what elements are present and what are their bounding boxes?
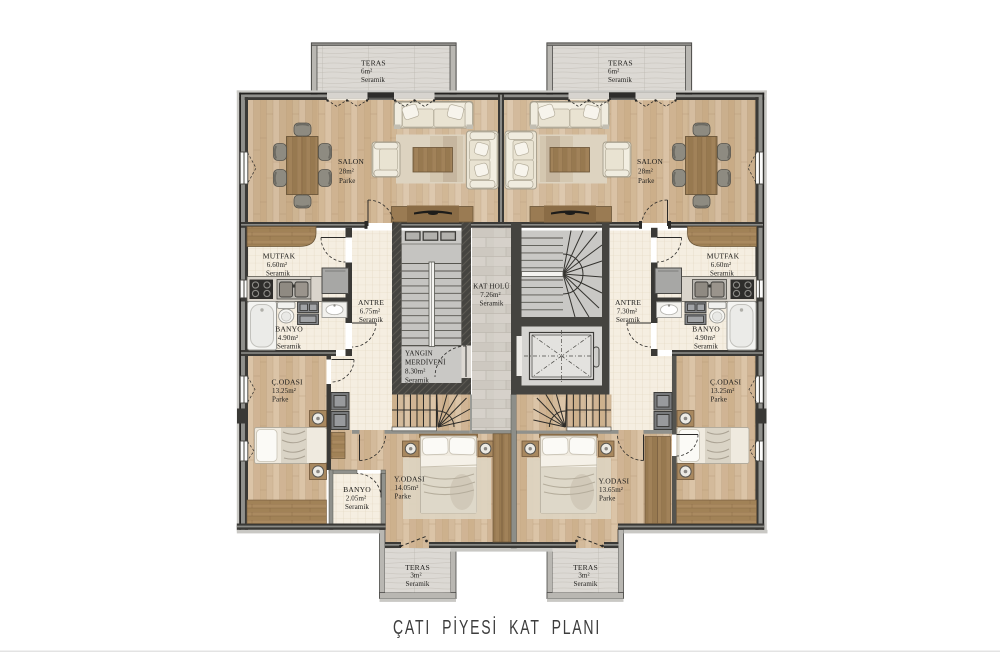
- svg-text:Parke: Parke: [272, 396, 288, 404]
- svg-text:SALON: SALON: [338, 157, 364, 166]
- svg-text:Parke: Parke: [339, 177, 355, 185]
- svg-text:Seramik: Seramik: [479, 300, 503, 308]
- svg-text:Y.ODASI: Y.ODASI: [394, 475, 425, 484]
- svg-text:Seramik: Seramik: [345, 503, 369, 511]
- svg-text:Seramik: Seramik: [361, 76, 385, 84]
- svg-text:14.05m²: 14.05m²: [395, 484, 419, 492]
- svg-text:SALON: SALON: [637, 157, 663, 166]
- svg-text:Y.ODASI: Y.ODASI: [599, 477, 630, 486]
- svg-text:7.30m²: 7.30m²: [617, 308, 637, 316]
- svg-text:Seramik: Seramik: [405, 580, 429, 588]
- svg-text:BANYO: BANYO: [343, 485, 371, 494]
- svg-text:Seramik: Seramik: [616, 316, 640, 324]
- svg-text:28m²: 28m²: [339, 168, 354, 176]
- svg-text:TERAS: TERAS: [361, 59, 386, 68]
- svg-text:MUTFAK: MUTFAK: [707, 252, 740, 261]
- svg-text:YANGIN: YANGIN: [405, 350, 433, 358]
- svg-text:Ç.ODASI: Ç.ODASI: [710, 378, 742, 387]
- svg-text:Ç.ODASI: Ç.ODASI: [272, 378, 304, 387]
- svg-text:Seramik: Seramik: [405, 377, 429, 385]
- svg-text:TERAS: TERAS: [608, 59, 633, 68]
- svg-text:Seramik: Seramik: [266, 270, 290, 278]
- svg-text:Seramik: Seramik: [710, 270, 734, 278]
- svg-text:KAT HOLÜ: KAT HOLÜ: [473, 282, 510, 291]
- svg-text:ANTRE: ANTRE: [358, 298, 384, 307]
- svg-text:3m²: 3m²: [410, 572, 421, 580]
- svg-text:3m²: 3m²: [578, 572, 589, 580]
- svg-text:6.60m²: 6.60m²: [267, 261, 287, 269]
- svg-text:6m²: 6m²: [361, 68, 372, 76]
- svg-text:Seramik: Seramik: [277, 343, 301, 351]
- svg-text:4.90m²: 4.90m²: [278, 334, 298, 342]
- svg-text:Seramik: Seramik: [608, 76, 632, 84]
- svg-text:6.75m²: 6.75m²: [360, 308, 380, 316]
- svg-text:13.25m²: 13.25m²: [711, 387, 735, 395]
- svg-text:Parke: Parke: [599, 495, 615, 503]
- svg-text:ANTRE: ANTRE: [615, 298, 641, 307]
- svg-text:Parke: Parke: [638, 177, 654, 185]
- svg-text:2.05m²: 2.05m²: [346, 495, 366, 503]
- svg-text:13.25m²: 13.25m²: [272, 387, 296, 395]
- svg-text:Parke: Parke: [395, 493, 411, 501]
- svg-text:MUTFAK: MUTFAK: [263, 252, 296, 261]
- svg-text:MERDİVENİ: MERDİVENİ: [405, 359, 446, 367]
- svg-text:Seramik: Seramik: [359, 316, 383, 324]
- svg-text:7.26m²: 7.26m²: [480, 291, 500, 299]
- svg-text:6.60m²: 6.60m²: [711, 261, 731, 269]
- svg-text:ÇATI PİYESİ KAT PLANI: ÇATI PİYESİ KAT PLANI: [393, 616, 601, 639]
- svg-text:BANYO: BANYO: [275, 325, 303, 334]
- svg-text:8.30m²: 8.30m²: [405, 368, 425, 376]
- svg-text:4.90m²: 4.90m²: [695, 334, 715, 342]
- svg-text:6m²: 6m²: [608, 68, 619, 76]
- svg-text:13.65m²: 13.65m²: [599, 486, 623, 494]
- svg-text:Seramik: Seramik: [694, 343, 718, 351]
- svg-text:BANYO: BANYO: [692, 325, 720, 334]
- svg-text:28m²: 28m²: [638, 168, 653, 176]
- svg-text:Parke: Parke: [711, 396, 727, 404]
- svg-text:Seramik: Seramik: [573, 580, 597, 588]
